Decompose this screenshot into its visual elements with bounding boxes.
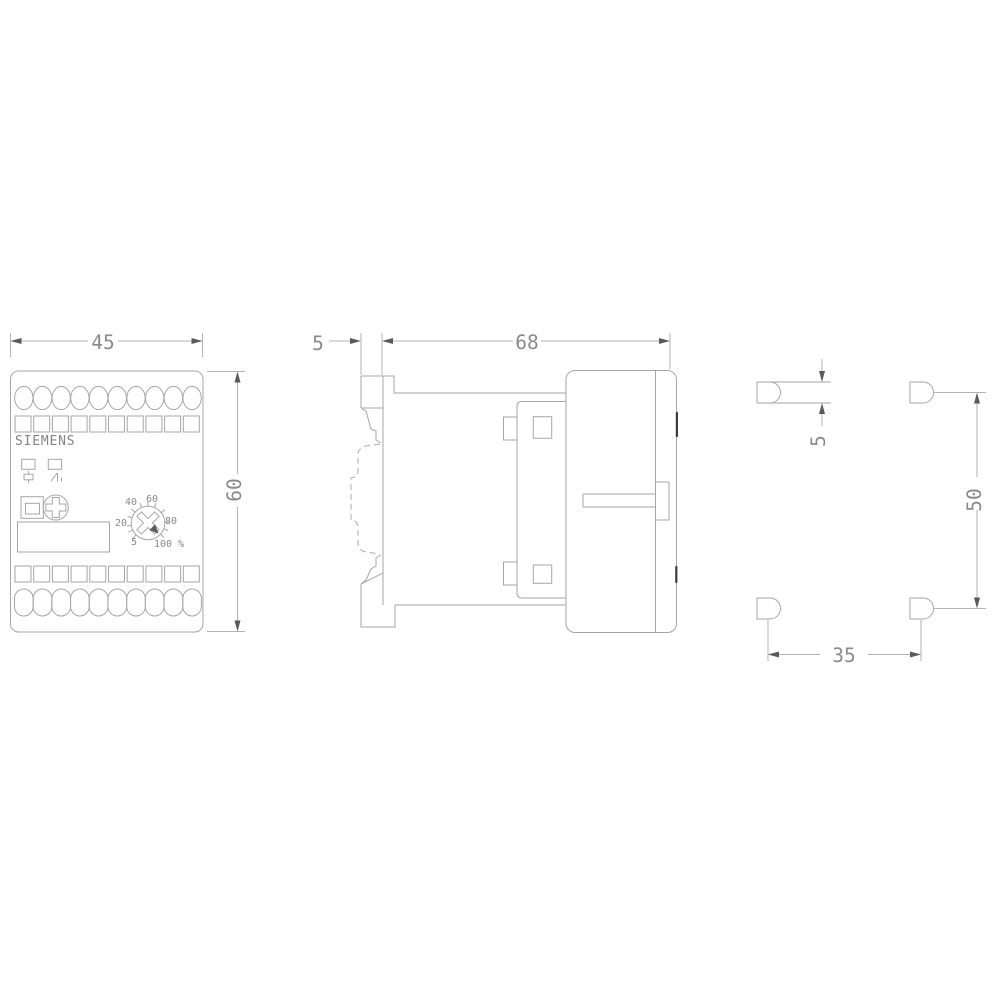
dial-label-60: 60 <box>146 494 158 505</box>
terminal-screw-port <box>34 566 50 582</box>
terminal-screw-port <box>146 566 162 582</box>
dial-label-40: 40 <box>125 497 137 508</box>
terminal-opening <box>52 386 70 409</box>
terminal-screw-port <box>183 416 199 432</box>
terminal-opening <box>89 589 108 616</box>
clip-top-claw <box>362 409 381 443</box>
test-button-inner <box>26 503 40 514</box>
side-depth-dimension: 68 <box>382 331 670 354</box>
mounting-slot-top-right <box>910 382 934 403</box>
terminal-opening <box>183 386 201 409</box>
terminal-screw-port <box>109 416 125 432</box>
side-rail-depth-value: 5 <box>312 332 324 355</box>
vertical-pitch-dimension: 50 <box>934 393 986 609</box>
clip-bottom-claw <box>361 555 381 584</box>
side-latch-lugs <box>504 417 518 585</box>
terminal-screw-port <box>183 566 199 582</box>
front-height-value: 60 <box>223 478 246 501</box>
bottom-terminal-square-row <box>15 566 199 582</box>
front-height-dimension: 60 <box>207 372 246 632</box>
side-body-profile <box>383 371 677 633</box>
front-width-dimension: 45 <box>11 331 203 357</box>
accessory-slot-tab <box>656 482 670 520</box>
horizontal-pitch-value: 35 <box>832 644 855 667</box>
dial-label-5: 5 <box>131 537 137 548</box>
terminal-opening <box>164 386 182 409</box>
terminal-screw-port <box>146 416 162 432</box>
terminal-screw-port <box>52 566 68 582</box>
terminal-opening <box>71 589 90 616</box>
side-view: 5 68 <box>312 331 677 633</box>
front-width-value: 45 <box>91 331 114 354</box>
contact-symbol-left <box>24 471 33 483</box>
terminal-opening <box>146 386 164 409</box>
phillips-screw-icon <box>43 495 68 520</box>
terminal-opening <box>15 589 34 616</box>
indicator-window-right <box>48 459 61 469</box>
accessory-slot-bar <box>583 494 656 507</box>
terminal-screw-port <box>90 416 106 432</box>
terminal-screw-port <box>90 566 106 582</box>
technical-drawing-page: SIEMENS 40 60 20 80 5 <box>0 0 1000 1000</box>
contact-symbol-right <box>51 473 62 482</box>
side-rail-depth-dimension: 5 <box>312 332 670 375</box>
terminal-opening <box>108 589 127 616</box>
clip-bottom-tab <box>361 584 395 627</box>
terminal-opening <box>164 589 183 616</box>
terminal-opening <box>33 589 52 616</box>
horizontal-pitch-dimension: 35 <box>768 620 921 667</box>
terminal-screw-port <box>165 416 181 432</box>
mounting-slot-bottom-right <box>910 598 934 619</box>
terminal-opening <box>33 386 51 409</box>
label-field <box>18 522 110 552</box>
dial-label-80: 80 <box>165 516 177 527</box>
terminal-opening <box>71 386 89 409</box>
bottom-terminal-oval-row <box>15 589 202 616</box>
dimensional-drawing: SIEMENS 40 60 20 80 5 <box>0 0 1000 1000</box>
terminal-screw-port <box>127 416 143 432</box>
terminal-screw-port <box>71 566 87 582</box>
terminal-screw-port <box>15 416 31 432</box>
side-depth-value: 68 <box>515 331 538 354</box>
terminal-screw-port <box>71 416 87 432</box>
terminal-opening <box>127 386 145 409</box>
terminal-opening <box>89 386 107 409</box>
indicator-window-left <box>22 459 35 469</box>
terminal-opening <box>145 589 164 616</box>
din-rail-clip <box>351 376 395 627</box>
dial-label-100: 100 % <box>154 539 184 550</box>
mounting-slot-top-left <box>757 382 831 403</box>
mounting-slot-bottom-left <box>757 598 781 619</box>
side-middle-block <box>517 402 566 599</box>
side-terminal-window-bottom <box>533 565 551 583</box>
brand-label: SIEMENS <box>15 434 75 449</box>
front-view: SIEMENS 40 60 20 80 5 <box>11 331 247 632</box>
percent-setting-dial: 40 60 20 80 5 100 % <box>115 494 184 550</box>
terminal-screw-port <box>109 566 125 582</box>
drilling-pattern: 5 50 35 <box>757 359 986 667</box>
terminal-screw-port <box>15 566 31 582</box>
side-terminal-window-top <box>533 417 551 439</box>
dial-label-20: 20 <box>115 518 127 529</box>
terminal-opening <box>183 589 202 616</box>
terminal-screw-port <box>52 416 68 432</box>
terminal-opening <box>108 386 126 409</box>
din-rail-profile-dashed <box>351 444 380 554</box>
terminal-screw-port <box>165 566 181 582</box>
slot-width-value: 5 <box>807 435 830 447</box>
terminal-opening <box>127 589 146 616</box>
top-terminal-circle-row <box>15 386 202 409</box>
top-terminal-square-row <box>15 416 199 432</box>
terminal-screw-port <box>127 566 143 582</box>
terminal-screw-port <box>34 416 50 432</box>
terminal-opening <box>52 589 71 616</box>
vertical-pitch-value: 50 <box>963 488 986 511</box>
terminal-opening <box>15 386 33 409</box>
